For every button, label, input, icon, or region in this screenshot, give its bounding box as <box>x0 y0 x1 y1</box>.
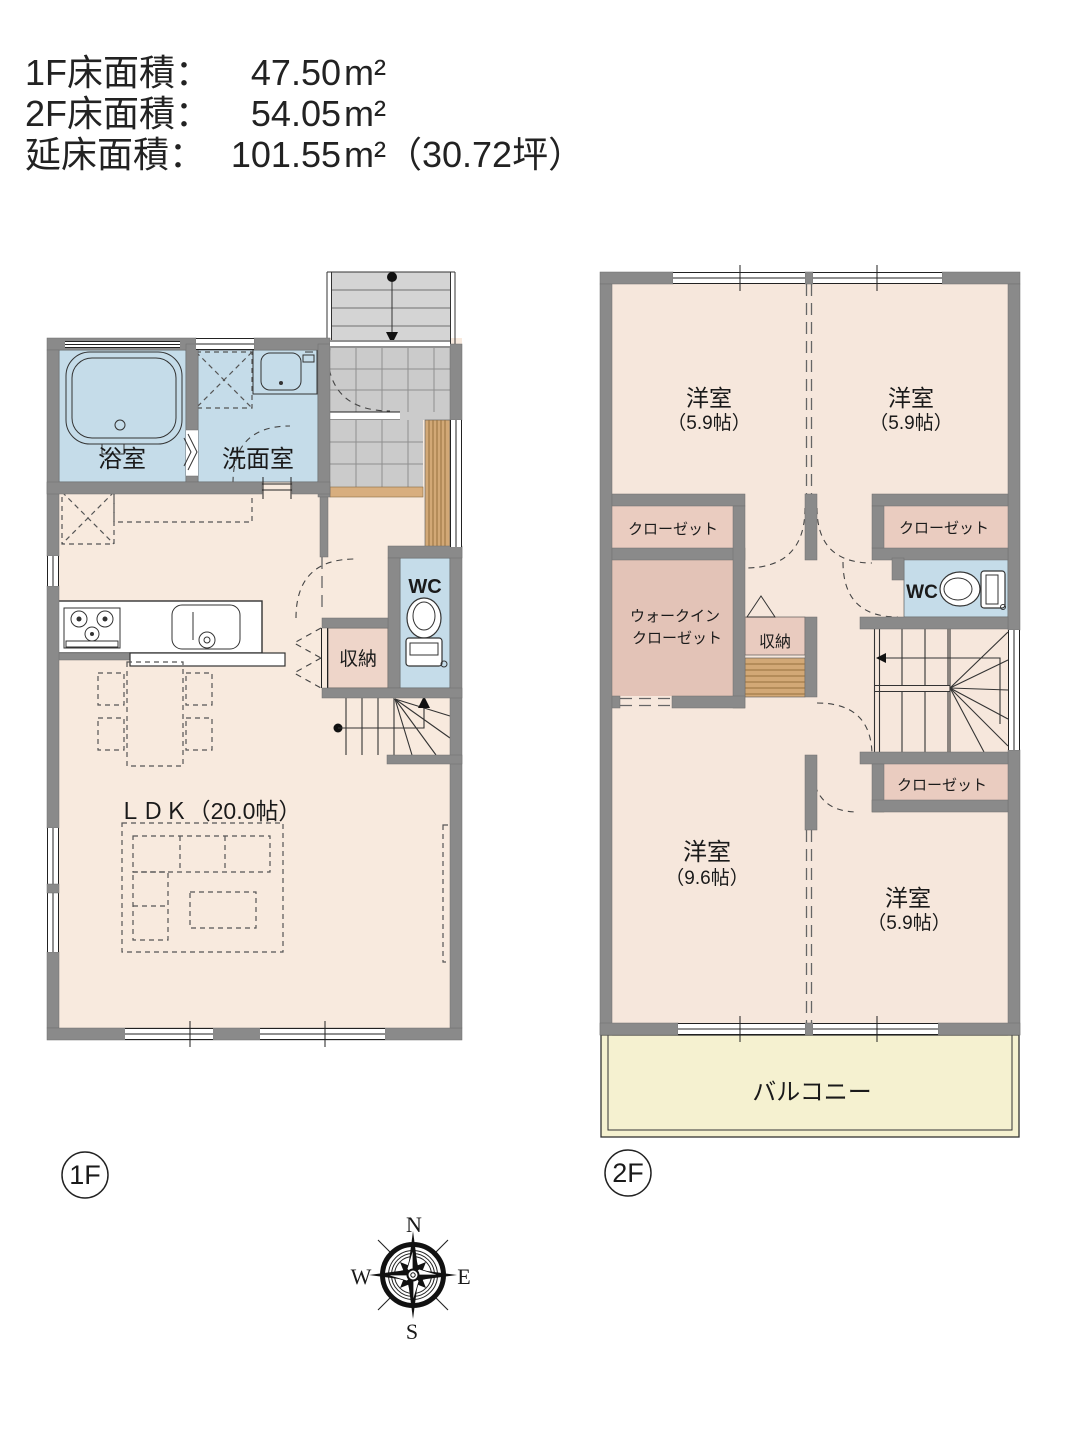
label-storage-2f: 収納 <box>759 633 791 651</box>
compass-rose: N S W E <box>351 1212 471 1344</box>
room-label-wc-1f: WC <box>408 576 441 598</box>
room-label-se: 洋室 <box>885 885 931 911</box>
entrance-step-edge <box>330 487 423 497</box>
entrance-porch <box>327 272 455 344</box>
compass-east-label: E <box>457 1264 470 1289</box>
window-wash-top <box>196 338 254 350</box>
label-balcony: バルコニー <box>752 1079 872 1106</box>
compass-south-label: S <box>406 1319 418 1344</box>
room-label-wash: 洗面室 <box>222 446 294 473</box>
room-label-storage-1f: 収納 <box>339 648 377 670</box>
approach-start-dot <box>387 272 397 282</box>
window-left-lower <box>47 828 59 952</box>
window-bath-top <box>65 341 180 348</box>
floor-plans-drawing: 浴室 洗面室 WC 収納 ＬＤＫ（20.0帖） <box>0 0 1088 1432</box>
window-2f-right-stairs <box>1008 630 1020 750</box>
room-label-sw-size: （9.6帖） <box>665 867 748 889</box>
room-label-ne: 洋室 <box>888 385 934 411</box>
floor-badge-1f: 1F <box>62 1152 108 1198</box>
room-label-sw: 洋室 <box>683 839 731 866</box>
floor-plan-1f: 浴室 洗面室 WC 収納 ＬＤＫ（20.0帖） <box>47 272 462 1047</box>
label-closet-nw: クローゼット <box>628 521 718 538</box>
bath-folding-door-icon <box>184 430 198 476</box>
room-label-ne-size: （5.9帖） <box>869 412 952 434</box>
front-door <box>330 340 450 348</box>
walkin-closet-floor <box>612 560 733 696</box>
room-label-nw-size: （5.9帖） <box>667 412 750 434</box>
window-right-hall <box>450 420 462 547</box>
compass-west-label: W <box>351 1264 372 1289</box>
label-closet-se: クローゼット <box>897 777 987 794</box>
label-closet-ne: クローゼット <box>899 520 989 537</box>
room-label-se-size: （5.9帖） <box>867 912 950 934</box>
wood-slat-floor-1f <box>425 420 450 547</box>
floor-plan-page: 1F床面積： 47.50 m² 2F床面積： 54.05 m² 延床面積： 10… <box>0 0 1088 1432</box>
wood-slat-floor-2f <box>745 658 805 697</box>
floor-badge-2f-text: 2F <box>612 1158 644 1188</box>
room-label-ldk: ＬＤＫ（20.0帖） <box>119 798 302 824</box>
kitchen-counter <box>57 601 285 666</box>
room-label-wc-2f: WC <box>906 582 938 603</box>
room-label-nw: 洋室 <box>686 385 732 411</box>
room-label-bath: 浴室 <box>98 446 146 473</box>
label-walkin-line2: クローゼット <box>632 630 722 647</box>
label-walkin-line1: ウォークイン <box>630 608 720 625</box>
floor-badge-1f-text: 1F <box>69 1160 101 1190</box>
floor-badge-2f: 2F <box>605 1150 651 1196</box>
floor-plan-2f: 洋室 （5.9帖） 洋室 （5.9帖） クローゼット クローゼット ウォークイン… <box>600 265 1020 1137</box>
compass-north-label: N <box>406 1212 422 1237</box>
window-left-upper <box>47 556 59 586</box>
